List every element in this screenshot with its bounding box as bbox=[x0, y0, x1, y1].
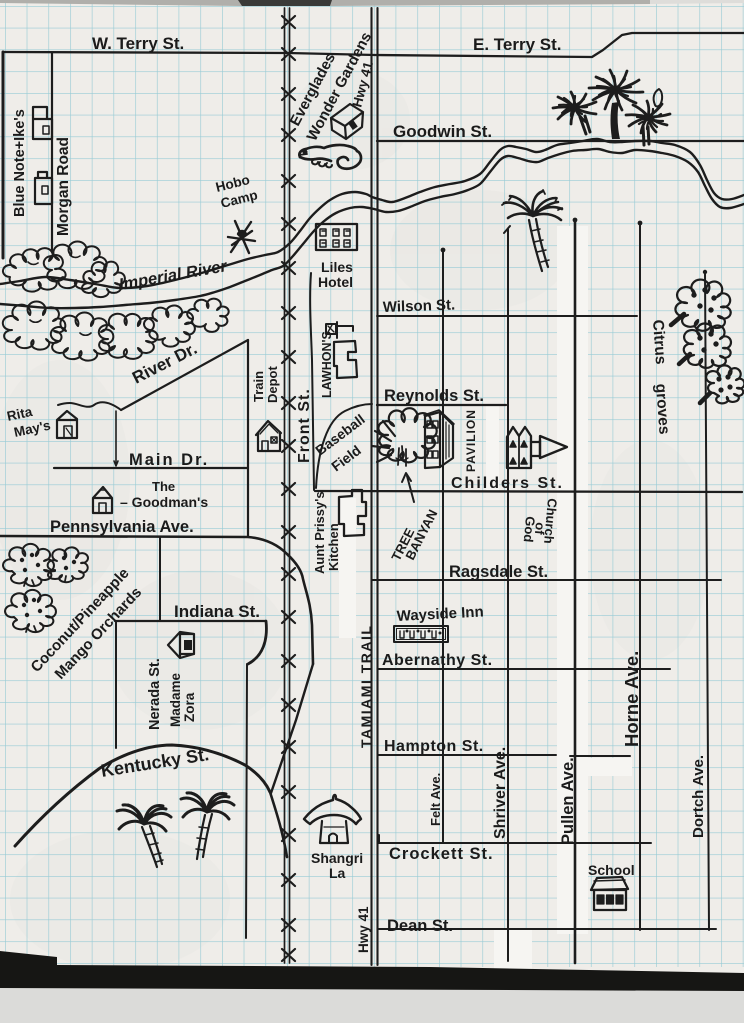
svg-text:The: The bbox=[152, 479, 175, 494]
svg-text:Horne Ave.: Horne Ave. bbox=[621, 651, 642, 747]
svg-text:Hotel: Hotel bbox=[318, 274, 353, 290]
svg-text:Zora: Zora bbox=[182, 692, 197, 722]
svg-text:Childers St.: Childers St. bbox=[451, 475, 564, 492]
svg-text:Crockett St.: Crockett St. bbox=[389, 845, 494, 863]
svg-text:TAMIAMI TRAIL: TAMIAMI TRAIL bbox=[358, 625, 374, 748]
svg-text:Aunt Prissy's: Aunt Prissy's bbox=[312, 491, 327, 574]
svg-text:Abernathy St.: Abernathy St. bbox=[382, 652, 493, 669]
svg-text:Kitchen: Kitchen bbox=[326, 523, 341, 571]
svg-text:Reynolds St.: Reynolds St. bbox=[384, 387, 484, 405]
svg-text:E. Terry St.: E. Terry St. bbox=[473, 35, 562, 54]
svg-text:Wilson St.: Wilson St. bbox=[383, 296, 456, 316]
svg-text:Hwy 41: Hwy 41 bbox=[356, 906, 371, 953]
svg-text:Dean St.: Dean St. bbox=[387, 917, 453, 935]
svg-text:Hampton St.: Hampton St. bbox=[384, 738, 484, 755]
svg-text:Front St.: Front St. bbox=[296, 388, 313, 463]
svg-text:groves: groves bbox=[652, 383, 673, 435]
svg-text:Shriver Ave.: Shriver Ave. bbox=[492, 747, 509, 839]
svg-text:Depot: Depot bbox=[265, 366, 280, 404]
svg-text:Blue Note+Ike's: Blue Note+Ike's bbox=[12, 109, 28, 217]
svg-text:Indiana St.: Indiana St. bbox=[174, 602, 260, 621]
svg-text:Goodwin St.: Goodwin St. bbox=[393, 122, 492, 141]
svg-text:Pennsylvania Ave.: Pennsylvania Ave. bbox=[50, 518, 194, 536]
svg-text:– Goodman's: – Goodman's bbox=[120, 494, 208, 510]
svg-text:Ragsdale St.: Ragsdale St. bbox=[449, 563, 548, 581]
svg-text:PAVILION: PAVILION bbox=[464, 409, 478, 472]
svg-text:Citrus: Citrus bbox=[649, 319, 669, 365]
svg-text:Madame: Madame bbox=[168, 672, 183, 727]
svg-text:Liles: Liles bbox=[321, 259, 353, 275]
svg-text:Nerada St.: Nerada St. bbox=[147, 658, 163, 730]
svg-text:Shangri: Shangri bbox=[311, 850, 363, 866]
svg-text:School: School bbox=[588, 862, 635, 878]
svg-text:Main Dr.: Main Dr. bbox=[129, 451, 209, 469]
svg-text:Dortch Ave.: Dortch Ave. bbox=[690, 755, 707, 838]
svg-text:God: God bbox=[521, 516, 538, 543]
svg-text:Train: Train bbox=[251, 371, 266, 402]
svg-text:Morgan Road: Morgan Road bbox=[55, 137, 72, 236]
svg-text:Pullen Ave.: Pullen Ave. bbox=[559, 757, 577, 845]
svg-text:LAWHON'S: LAWHON'S bbox=[320, 331, 334, 398]
svg-text:Felt Ave.: Felt Ave. bbox=[428, 773, 443, 826]
svg-text:La: La bbox=[329, 865, 346, 881]
svg-text:W. Terry St.: W. Terry St. bbox=[92, 34, 184, 53]
